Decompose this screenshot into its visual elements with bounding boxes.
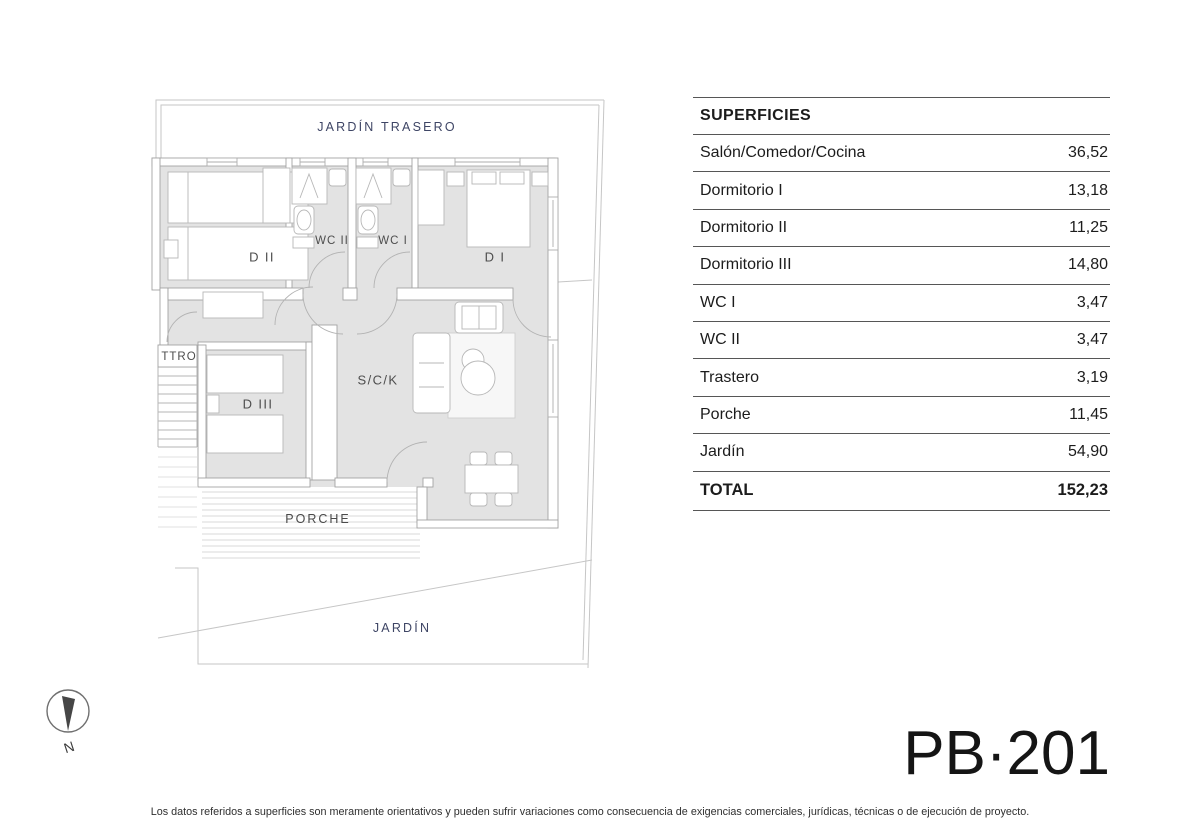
row-value: 3,47 xyxy=(1077,294,1108,312)
surface-table: SUPERFICIES Salón/Comedor/Cocina 36,52 D… xyxy=(693,97,1110,511)
table-row: Dormitorio II 11,25 xyxy=(693,209,1110,246)
table-row: Salón/Comedor/Cocina 36,52 xyxy=(693,134,1110,171)
row-label: WC II xyxy=(700,331,740,349)
stairs xyxy=(158,367,197,447)
room-label-ttro: TTRO xyxy=(161,351,196,363)
row-label: Trastero xyxy=(700,369,759,387)
porch-label: PORCHE xyxy=(285,512,350,526)
row-value: 11,45 xyxy=(1069,406,1108,424)
table-total-row: TOTAL 152,23 xyxy=(693,471,1110,511)
total-label: TOTAL xyxy=(700,481,753,500)
room-label-d1: D I xyxy=(485,250,506,265)
row-value: 3,47 xyxy=(1077,331,1108,349)
table-row: Dormitorio I 13,18 xyxy=(693,171,1110,208)
table-title: SUPERFICIES xyxy=(700,107,811,125)
room-label-sck: S/C/K xyxy=(358,373,399,388)
room-label-d2: D II xyxy=(249,250,275,265)
row-value: 11,25 xyxy=(1069,219,1108,237)
garden-label: JARDÍN xyxy=(373,621,431,635)
north-label: N xyxy=(62,738,77,756)
row-value: 3,19 xyxy=(1077,369,1108,387)
table-row: Jardín 54,90 xyxy=(693,433,1110,470)
row-label: WC I xyxy=(700,294,736,312)
site-plan: JARDÍN TRASERO D II WC II WC I D I TTRO … xyxy=(140,90,630,680)
row-value: 14,80 xyxy=(1068,256,1108,274)
stairs-faint xyxy=(158,457,197,527)
row-value: 36,52 xyxy=(1068,144,1108,162)
garden-back-label: JARDÍN TRASERO xyxy=(317,120,457,134)
row-label: Dormitorio I xyxy=(700,182,783,200)
table-row: WC I 3,47 xyxy=(693,284,1110,321)
north-compass: N xyxy=(38,683,100,767)
table-row: Porche 11,45 xyxy=(693,396,1110,433)
room-label-wc1: WC I xyxy=(378,235,408,247)
row-value: 13,18 xyxy=(1068,182,1108,200)
north-arrow-icon xyxy=(38,683,100,739)
room-label-d3: D III xyxy=(243,397,274,412)
total-value: 152,23 xyxy=(1058,481,1108,500)
room-label-wc2: WC II xyxy=(315,235,349,247)
table-header: SUPERFICIES xyxy=(693,97,1110,134)
disclaimer-text: Los datos referidos a superficies son me… xyxy=(0,806,1180,818)
row-label: Salón/Comedor/Cocina xyxy=(700,144,865,162)
table-row: Dormitorio III 14,80 xyxy=(693,246,1110,283)
row-label: Dormitorio III xyxy=(700,256,792,274)
row-value: 54,90 xyxy=(1068,443,1108,461)
row-label: Jardín xyxy=(700,443,744,461)
row-label: Dormitorio II xyxy=(700,219,787,237)
table-row: WC II 3,47 xyxy=(693,321,1110,358)
row-label: Porche xyxy=(700,406,751,424)
unit-code: PB·201 xyxy=(903,723,1110,785)
table-row: Trastero 3,19 xyxy=(693,358,1110,395)
plan-sheet: JARDÍN TRASERO D II WC II WC I D I TTRO … xyxy=(0,0,1180,834)
